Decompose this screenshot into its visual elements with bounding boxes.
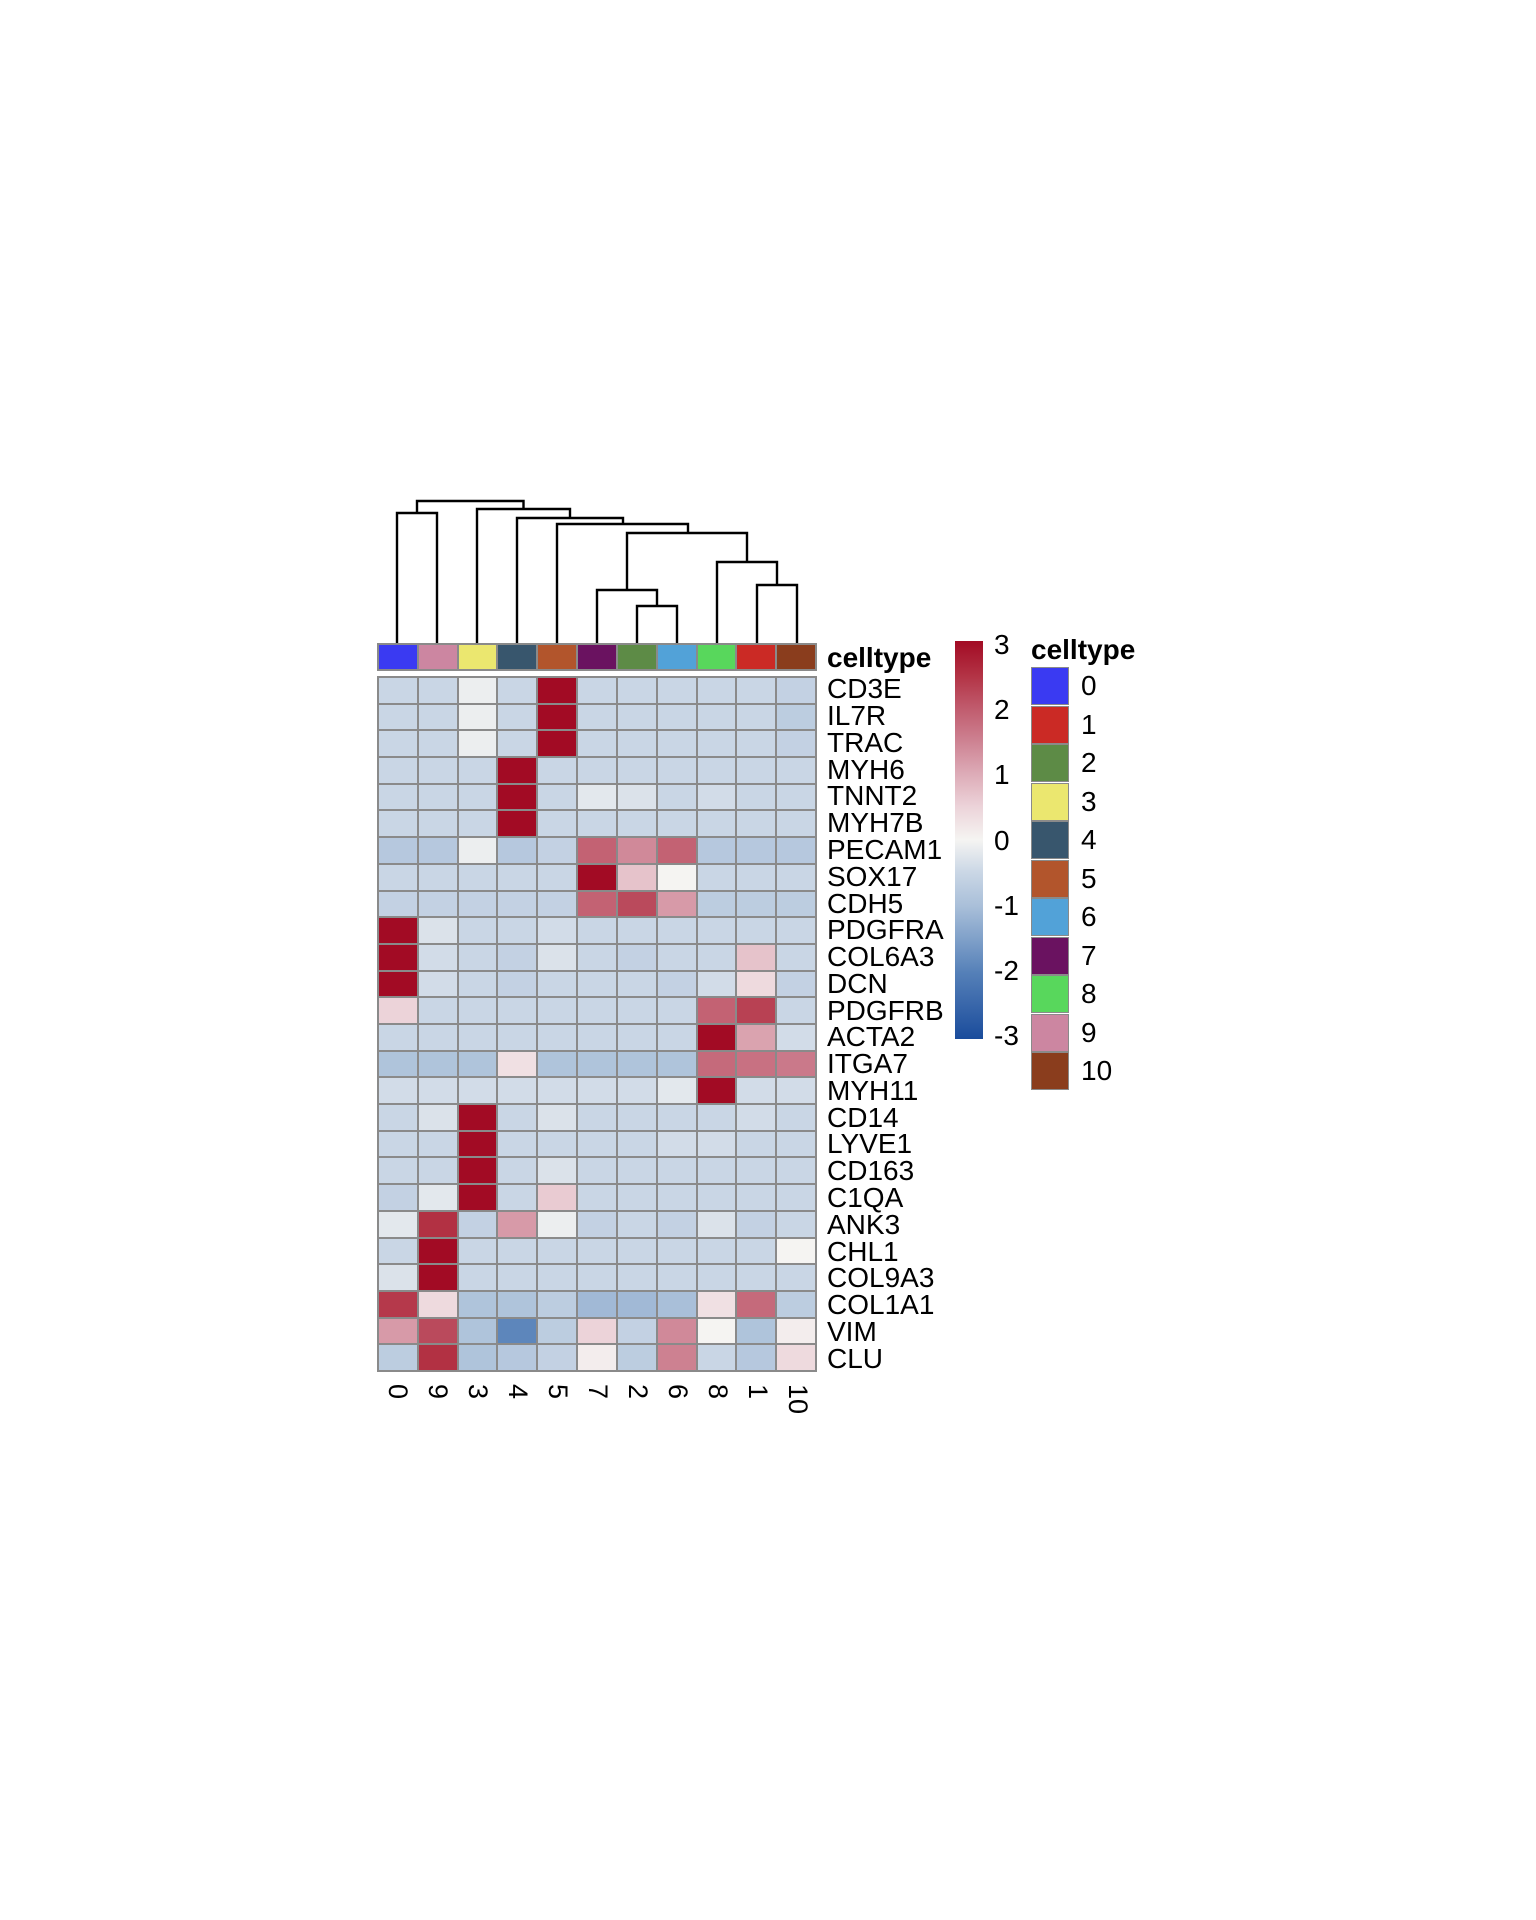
- heatmap-cell: [537, 1131, 577, 1158]
- legend-label-celltype-9: 9: [1081, 1019, 1097, 1047]
- heatmap-cell: [697, 704, 737, 731]
- heatmap-cell: [736, 1077, 776, 1104]
- heatmap-cell: [537, 1238, 577, 1265]
- column-dendrogram: [377, 495, 817, 643]
- heatmap-cell: [418, 1157, 458, 1184]
- heatmap-cell: [657, 1157, 697, 1184]
- legend-label-celltype-3: 3: [1081, 788, 1097, 816]
- heatmap-cell: [776, 1024, 816, 1051]
- heatmap-cell: [617, 677, 657, 704]
- heatmap-cell: [497, 1104, 537, 1131]
- heatmap-cell: [617, 1344, 657, 1371]
- heatmap-cell: [577, 1104, 617, 1131]
- heatmap-cell: [657, 730, 697, 757]
- heatmap-cell: [657, 944, 697, 971]
- heatmap-cell: [497, 810, 537, 837]
- heatmap-cell: [458, 730, 498, 757]
- column-label-4: 4: [504, 1384, 531, 1399]
- colorbar-tick-3: 3: [994, 631, 1010, 659]
- heatmap-cell: [418, 1184, 458, 1211]
- heatmap-cell: [418, 784, 458, 811]
- heatmap-cell: [537, 1157, 577, 1184]
- heatmap-cell: [736, 1024, 776, 1051]
- heatmap-cell: [657, 1211, 697, 1238]
- heatmap-cell: [776, 1157, 816, 1184]
- heatmap-cell: [736, 1104, 776, 1131]
- annotation-cell-celltype-7: [577, 644, 617, 670]
- column-label-3: 3: [464, 1384, 491, 1399]
- heatmap-cell: [617, 730, 657, 757]
- heatmap-cell: [537, 704, 577, 731]
- heatmap-cell: [617, 1318, 657, 1345]
- heatmap-cell: [736, 1157, 776, 1184]
- heatmap-cell: [378, 1184, 418, 1211]
- heatmap-cell: [497, 1238, 537, 1265]
- heatmap-cell: [577, 784, 617, 811]
- legend-swatch-celltype-2: [1031, 744, 1069, 782]
- heatmap-cell: [497, 677, 537, 704]
- heatmap-cell: [577, 1264, 617, 1291]
- heatmap-cell: [657, 1344, 697, 1371]
- heatmap-cell: [697, 1104, 737, 1131]
- heatmap-cell: [577, 730, 617, 757]
- heatmap-cell: [736, 757, 776, 784]
- heatmap-cell: [776, 971, 816, 998]
- heatmap-cell: [537, 1104, 577, 1131]
- legend-label-celltype-5: 5: [1081, 865, 1097, 893]
- heatmap-cell: [657, 997, 697, 1024]
- heatmap-cell: [458, 917, 498, 944]
- heatmap-cell: [497, 1051, 537, 1078]
- heatmap-cell: [697, 837, 737, 864]
- heatmap-cell: [418, 1291, 458, 1318]
- heatmap-cell: [617, 1291, 657, 1318]
- heatmap-cell: [497, 1024, 537, 1051]
- heatmap-cell: [657, 1238, 697, 1265]
- heatmap-cell: [378, 864, 418, 891]
- annotation-cell-celltype-8: [697, 644, 737, 670]
- heatmap-cell: [736, 1051, 776, 1078]
- heatmap-cell: [617, 997, 657, 1024]
- heatmap-cell: [458, 971, 498, 998]
- colorbar-gradient: [955, 641, 983, 1039]
- heatmap-cell: [776, 864, 816, 891]
- heatmap-cell: [418, 704, 458, 731]
- heatmap-cell: [697, 917, 737, 944]
- heatmap-cell: [537, 891, 577, 918]
- heatmap-cell: [776, 891, 816, 918]
- heatmap-cell: [617, 1157, 657, 1184]
- heatmap-cell: [736, 810, 776, 837]
- row-label-CLU: CLU: [827, 1345, 883, 1373]
- heatmap-cell: [497, 971, 537, 998]
- heatmap-cell: [776, 1104, 816, 1131]
- heatmap-cell: [697, 677, 737, 704]
- heatmap-cell: [657, 1077, 697, 1104]
- heatmap-cell: [418, 837, 458, 864]
- heatmap-cell: [697, 971, 737, 998]
- annotation-cell-celltype-4: [497, 644, 537, 670]
- heatmap-cell: [458, 1238, 498, 1265]
- heatmap-cell: [537, 1291, 577, 1318]
- heatmap-cell: [736, 997, 776, 1024]
- heatmap-cell: [418, 1131, 458, 1158]
- heatmap-cell: [736, 944, 776, 971]
- legend-label-celltype-10: 10: [1081, 1057, 1112, 1085]
- heatmap-cell: [697, 1318, 737, 1345]
- heatmap-cell: [418, 917, 458, 944]
- heatmap-cell: [537, 677, 577, 704]
- heatmap-cell: [378, 837, 418, 864]
- heatmap-cell: [736, 864, 776, 891]
- legend-swatch-celltype-5: [1031, 860, 1069, 898]
- heatmap-cell: [577, 997, 617, 1024]
- heatmap-cell: [577, 891, 617, 918]
- heatmap-cell: [776, 1264, 816, 1291]
- heatmap-cell: [418, 891, 458, 918]
- heatmap-cell: [617, 1264, 657, 1291]
- column-label-10: 10: [784, 1384, 811, 1414]
- legend-swatch-celltype-0: [1031, 667, 1069, 705]
- heatmap-cell: [697, 1238, 737, 1265]
- heatmap-cell: [697, 1344, 737, 1371]
- heatmap-cell: [378, 944, 418, 971]
- legend-label-celltype-0: 0: [1081, 672, 1097, 700]
- heatmap-cell: [736, 971, 776, 998]
- heatmap-cell: [458, 1344, 498, 1371]
- heatmap-cell: [577, 1131, 617, 1158]
- heatmap-cell: [497, 891, 537, 918]
- heatmap-cell: [736, 1238, 776, 1265]
- heatmap-cell: [497, 730, 537, 757]
- heatmap-cell: [776, 1344, 816, 1371]
- heatmap-cell: [378, 1104, 418, 1131]
- heatmap-cell: [617, 1051, 657, 1078]
- colorbar-tick-1: 1: [994, 761, 1010, 789]
- heatmap-cell: [657, 1051, 697, 1078]
- heatmap-cell: [657, 1291, 697, 1318]
- heatmap-cell: [378, 677, 418, 704]
- heatmap-cell: [736, 784, 776, 811]
- heatmap-cell: [497, 1184, 537, 1211]
- heatmap-cell: [418, 810, 458, 837]
- column-label-0: 0: [384, 1384, 411, 1399]
- annotation-cell-celltype-9: [418, 644, 458, 670]
- heatmap-cell: [736, 1211, 776, 1238]
- heatmap-cell: [736, 1131, 776, 1158]
- heatmap-cell: [736, 1344, 776, 1371]
- heatmap-cell: [497, 784, 537, 811]
- heatmap-cell: [418, 997, 458, 1024]
- column-label-6: 6: [664, 1384, 691, 1399]
- heatmap-grid: [377, 676, 817, 1372]
- heatmap-cell: [497, 1131, 537, 1158]
- celltype-annotation-bar: [377, 643, 817, 671]
- heatmap-cell: [537, 944, 577, 971]
- heatmap-cell: [378, 891, 418, 918]
- heatmap-cell: [458, 891, 498, 918]
- annotation-cell-celltype-2: [617, 644, 657, 670]
- heatmap-cell: [617, 864, 657, 891]
- heatmap-cell: [617, 1184, 657, 1211]
- heatmap-cell: [736, 1184, 776, 1211]
- heatmap-cell: [418, 1051, 458, 1078]
- heatmap-cell: [776, 1238, 816, 1265]
- heatmap-cell: [736, 837, 776, 864]
- heatmap-cell: [458, 1318, 498, 1345]
- heatmap-cell: [697, 810, 737, 837]
- heatmap-cell: [537, 1264, 577, 1291]
- heatmap-cell: [617, 971, 657, 998]
- heatmap-cell: [418, 971, 458, 998]
- heatmap-cell: [776, 730, 816, 757]
- heatmap-cell: [497, 837, 537, 864]
- heatmap-cell: [537, 784, 577, 811]
- heatmap-cell: [657, 704, 697, 731]
- heatmap-cell: [736, 1264, 776, 1291]
- heatmap-cell: [577, 837, 617, 864]
- heatmap-cell: [537, 1051, 577, 1078]
- column-label-9: 9: [424, 1384, 451, 1399]
- heatmap-cell: [458, 1264, 498, 1291]
- colorbar-tick--2: -2: [994, 957, 1019, 985]
- heatmap-cell: [418, 1077, 458, 1104]
- heatmap-cell: [537, 730, 577, 757]
- heatmap-cell: [537, 864, 577, 891]
- heatmap-cell: [378, 1238, 418, 1265]
- heatmap-cell: [418, 757, 458, 784]
- colorbar-tick-2: 2: [994, 696, 1010, 724]
- heatmap-cell: [577, 1238, 617, 1265]
- heatmap-cell: [697, 1291, 737, 1318]
- heatmap-cell: [458, 704, 498, 731]
- heatmap-cell: [378, 1264, 418, 1291]
- heatmap-cell: [697, 1264, 737, 1291]
- heatmap-cell: [458, 1184, 498, 1211]
- heatmap-cell: [657, 1104, 697, 1131]
- heatmap-cell: [577, 971, 617, 998]
- heatmap-cell: [697, 757, 737, 784]
- heatmap-cell: [537, 837, 577, 864]
- legend-swatch-celltype-4: [1031, 821, 1069, 859]
- column-label-7: 7: [584, 1384, 611, 1399]
- heatmap-cell: [497, 757, 537, 784]
- heatmap-cell: [577, 677, 617, 704]
- heatmap-cell: [378, 997, 418, 1024]
- heatmap-cell: [657, 810, 697, 837]
- heatmap-cell: [378, 1131, 418, 1158]
- heatmap-cell: [697, 1051, 737, 1078]
- column-labels: 093457268110: [377, 1382, 817, 1462]
- heatmap-cell: [617, 1024, 657, 1051]
- heatmap-cell: [418, 1104, 458, 1131]
- heatmap-cell: [418, 1344, 458, 1371]
- heatmap-cell: [736, 1291, 776, 1318]
- heatmap-cell: [378, 757, 418, 784]
- annotation-cell-celltype-5: [537, 644, 577, 670]
- annotation-cell-celltype-6: [657, 644, 697, 670]
- legend-label-celltype-2: 2: [1081, 749, 1097, 777]
- heatmap-cell: [577, 1157, 617, 1184]
- heatmap-cell: [458, 1291, 498, 1318]
- heatmap-cell: [537, 1211, 577, 1238]
- annotation-bar-title: celltype: [827, 644, 931, 672]
- heatmap-cell: [657, 971, 697, 998]
- legend-label-celltype-7: 7: [1081, 942, 1097, 970]
- heatmap-cell: [418, 944, 458, 971]
- column-label-2: 2: [624, 1384, 651, 1399]
- heatmap-cell: [537, 997, 577, 1024]
- colorbar-tick-0: 0: [994, 827, 1010, 855]
- heatmap-cell: [617, 944, 657, 971]
- colorbar-tick--1: -1: [994, 892, 1019, 920]
- heatmap-cell: [458, 1211, 498, 1238]
- heatmap-cell: [776, 997, 816, 1024]
- heatmap-cell: [657, 864, 697, 891]
- heatmap-cell: [776, 1077, 816, 1104]
- heatmap-cell: [776, 917, 816, 944]
- legend-title: celltype: [1031, 636, 1135, 664]
- heatmap-cell: [577, 757, 617, 784]
- heatmap-cell: [497, 864, 537, 891]
- heatmap-cell: [458, 1157, 498, 1184]
- heatmap-cell: [418, 1264, 458, 1291]
- heatmap-cell: [577, 704, 617, 731]
- heatmap-cell: [617, 1238, 657, 1265]
- heatmap-cell: [577, 810, 617, 837]
- legend-label-celltype-8: 8: [1081, 980, 1097, 1008]
- heatmap-cell: [617, 1131, 657, 1158]
- heatmap-cell: [617, 837, 657, 864]
- heatmap-cell: [617, 810, 657, 837]
- heatmap-cell: [418, 677, 458, 704]
- heatmap-cell: [577, 944, 617, 971]
- heatmap-cell: [617, 757, 657, 784]
- heatmap-cell: [736, 730, 776, 757]
- heatmap-cell: [458, 864, 498, 891]
- heatmap-cell: [378, 1211, 418, 1238]
- annotation-cell-celltype-0: [378, 644, 418, 670]
- heatmap-cell: [378, 704, 418, 731]
- heatmap-cell: [458, 1051, 498, 1078]
- heatmap-cell: [577, 1184, 617, 1211]
- heatmap-cell: [497, 1344, 537, 1371]
- heatmap-cell: [418, 1211, 458, 1238]
- heatmap-cell: [577, 1344, 617, 1371]
- heatmap-cell: [657, 1318, 697, 1345]
- heatmap-cell: [537, 1344, 577, 1371]
- heatmap-cell: [497, 944, 537, 971]
- heatmap-cell: [776, 837, 816, 864]
- heatmap-cell: [736, 891, 776, 918]
- heatmap-cell: [497, 1157, 537, 1184]
- heatmap-cell: [458, 997, 498, 1024]
- heatmap-cell: [776, 704, 816, 731]
- column-label-1: 1: [744, 1384, 771, 1399]
- heatmap-cell: [537, 757, 577, 784]
- annotation-cell-celltype-1: [736, 644, 776, 670]
- heatmap-cell: [577, 917, 617, 944]
- heatmap-cell: [537, 917, 577, 944]
- heatmap-cell: [497, 1211, 537, 1238]
- heatmap-cell: [458, 810, 498, 837]
- heatmap-cell: [577, 864, 617, 891]
- celltype-legend: 012345678910: [1031, 667, 1231, 1097]
- heatmap-cell: [776, 757, 816, 784]
- heatmap-cell: [497, 704, 537, 731]
- heatmap-cell: [697, 1131, 737, 1158]
- heatmap-cell: [537, 1077, 577, 1104]
- heatmap-cell: [697, 1077, 737, 1104]
- heatmap-cell: [577, 1077, 617, 1104]
- heatmap-cell: [497, 1318, 537, 1345]
- heatmap-cell: [577, 1291, 617, 1318]
- heatmap-cell: [657, 837, 697, 864]
- heatmap-cell: [657, 784, 697, 811]
- column-label-5: 5: [544, 1384, 571, 1399]
- heatmap-cell: [497, 997, 537, 1024]
- heatmap-cell: [776, 810, 816, 837]
- heatmap-cell: [378, 1051, 418, 1078]
- dendrogram-lines: [397, 501, 797, 643]
- legend-label-celltype-4: 4: [1081, 826, 1097, 854]
- heatmap-cell: [657, 677, 697, 704]
- heatmap-cell: [657, 1184, 697, 1211]
- heatmap-cell: [458, 1024, 498, 1051]
- heatmap-cell: [378, 1291, 418, 1318]
- heatmap-cell: [617, 704, 657, 731]
- heatmap-cell: [697, 784, 737, 811]
- legend-swatch-celltype-10: [1031, 1052, 1069, 1090]
- heatmap-cell: [736, 917, 776, 944]
- heatmap-cell: [617, 1211, 657, 1238]
- heatmap-cell: [776, 1184, 816, 1211]
- clustered-heatmap-figure: celltype CD3EIL7RTRACMYH6TNNT2MYH7BPECAM…: [0, 0, 1536, 1920]
- legend-swatch-celltype-3: [1031, 783, 1069, 821]
- heatmap-cell: [497, 1264, 537, 1291]
- colorbar-tick--3: -3: [994, 1022, 1019, 1050]
- heatmap-cell: [458, 1131, 498, 1158]
- heatmap-cell: [657, 917, 697, 944]
- heatmap-cell: [458, 784, 498, 811]
- heatmap-cell: [577, 1024, 617, 1051]
- heatmap-cell: [378, 784, 418, 811]
- heatmap-cell: [617, 917, 657, 944]
- legend-swatch-celltype-9: [1031, 1014, 1069, 1052]
- heatmap-cell: [418, 1024, 458, 1051]
- heatmap-cell: [776, 1318, 816, 1345]
- heatmap-cell: [697, 730, 737, 757]
- heatmap-cell: [776, 1051, 816, 1078]
- annotation-cell-celltype-10: [776, 644, 816, 670]
- heatmap-cell: [776, 1291, 816, 1318]
- heatmap-cell: [617, 1077, 657, 1104]
- heatmap-cell: [537, 1024, 577, 1051]
- heatmap-cell: [657, 1024, 697, 1051]
- heatmap-cell: [418, 1318, 458, 1345]
- heatmap-cell: [776, 1131, 816, 1158]
- heatmap-cell: [617, 891, 657, 918]
- heatmap-cell: [697, 944, 737, 971]
- heatmap-cell: [697, 1184, 737, 1211]
- heatmap-cell: [458, 1104, 498, 1131]
- heatmap-cell: [697, 1211, 737, 1238]
- heatmap-cell: [378, 730, 418, 757]
- legend-swatch-celltype-7: [1031, 937, 1069, 975]
- heatmap-cell: [458, 677, 498, 704]
- heatmap-cell: [458, 1077, 498, 1104]
- heatmap-cell: [697, 997, 737, 1024]
